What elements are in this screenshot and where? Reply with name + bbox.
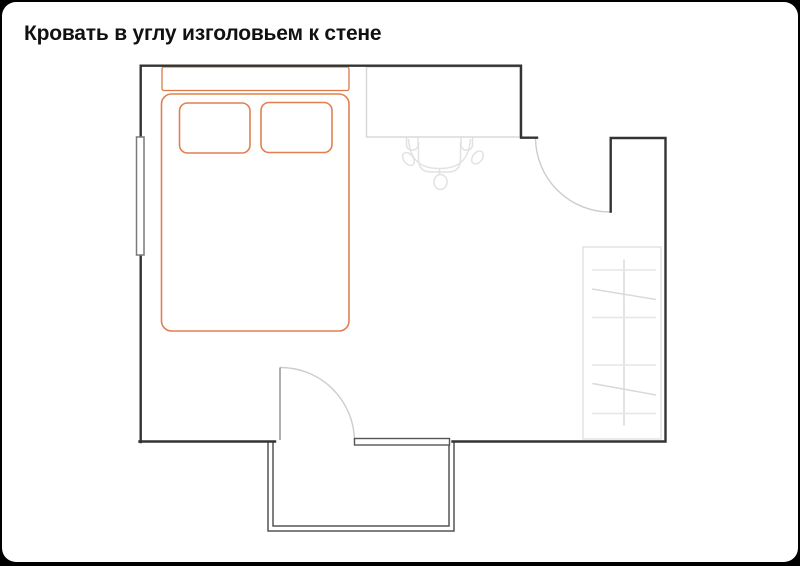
desk [367, 67, 521, 137]
chair-seat [419, 142, 461, 172]
bed [162, 67, 350, 331]
chair-armrest-right [469, 149, 485, 166]
chair-armrest-left [400, 150, 416, 167]
floor-plan [2, 2, 800, 566]
balcony-door-arc [280, 367, 355, 441]
page-card: Кровать в углу изголовьем к стене [2, 2, 798, 562]
window [137, 137, 145, 255]
wardrobe-outline [583, 247, 661, 439]
balcony [268, 439, 454, 532]
wardrobe [583, 247, 661, 439]
balcony-window-sill [355, 439, 450, 446]
pillow-left [180, 103, 251, 153]
chair-caster-front [434, 175, 447, 190]
bed-headboard [162, 67, 349, 91]
desk-chair [400, 130, 485, 190]
balcony-inner [273, 442, 449, 527]
balcony-outer [268, 442, 454, 532]
entry-door-arc [536, 138, 611, 212]
pillow-right [261, 103, 332, 153]
